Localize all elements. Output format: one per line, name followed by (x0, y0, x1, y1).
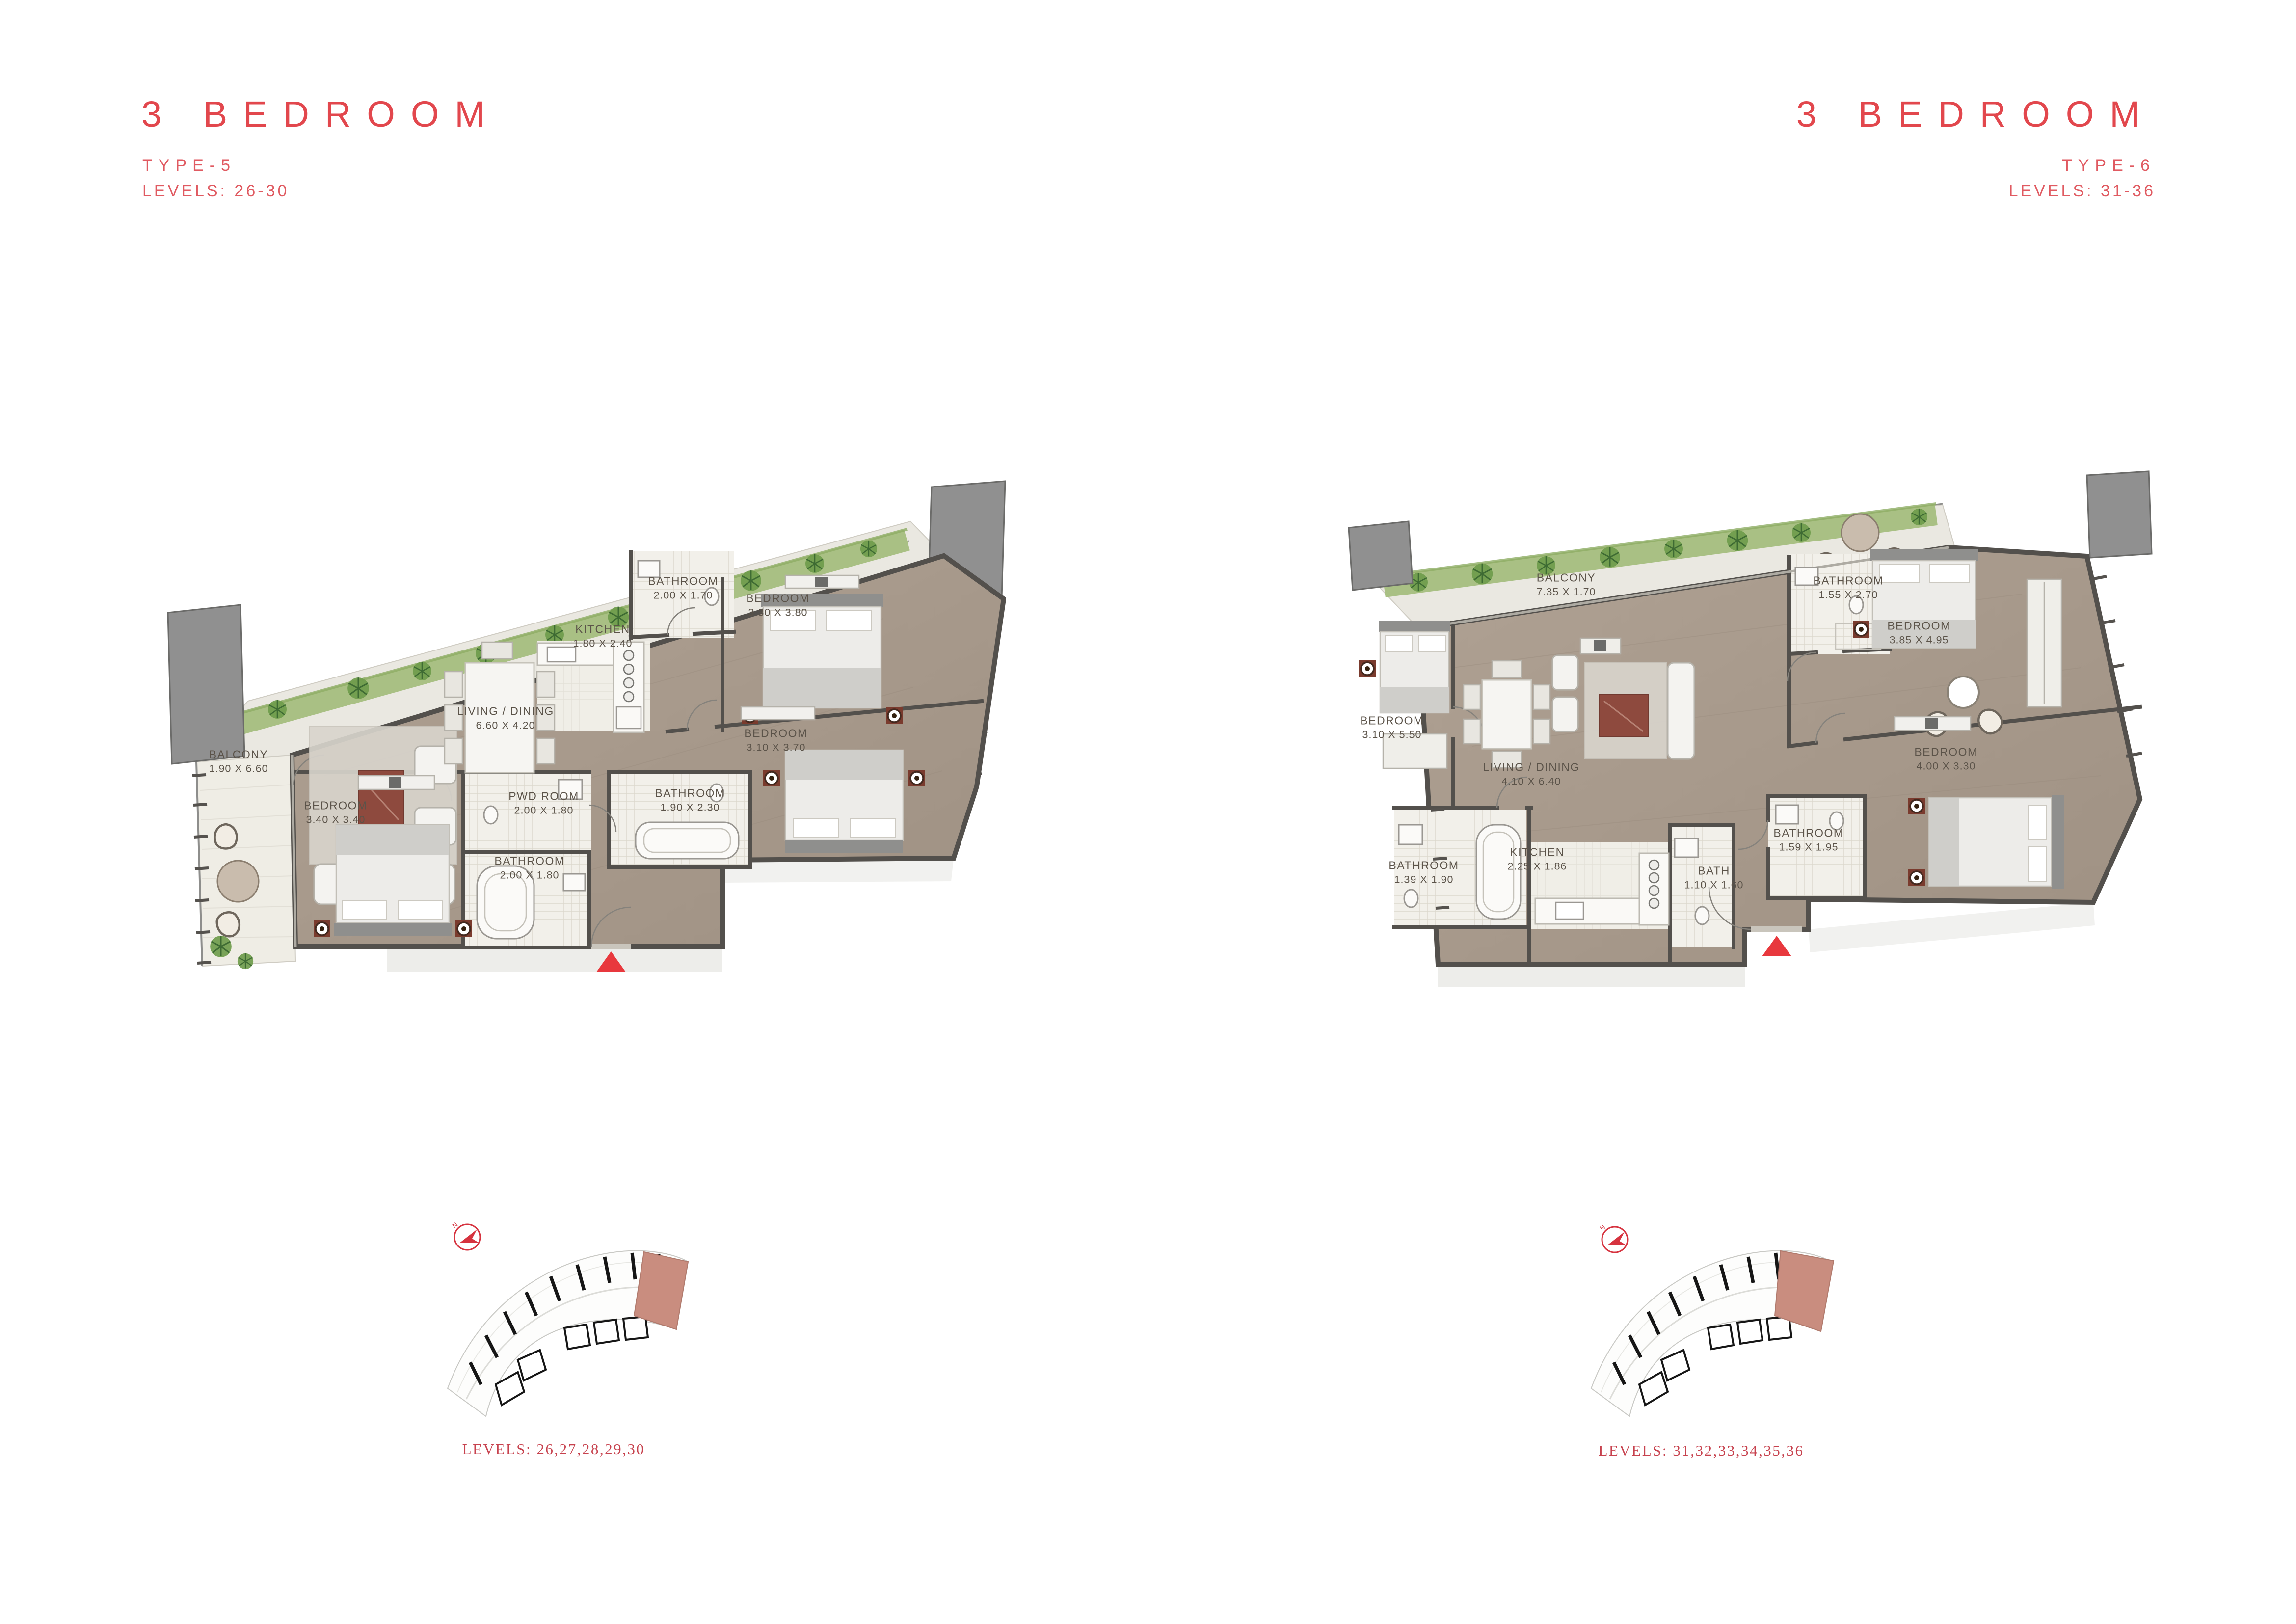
room-name: LIVING / DINING (1483, 760, 1580, 775)
floor-plan-type6 (1325, 432, 2184, 1001)
room-name: BEDROOM (1360, 713, 1423, 728)
room-label-bathroom: BATHROOM 2.00 X 1.80 (494, 854, 564, 883)
room-dims: 1.39 X 1.90 (1388, 873, 1459, 887)
type-label-type6: TYPE-6 (2062, 156, 2156, 175)
room-dims: 1.59 X 1.95 (1773, 840, 1843, 854)
room-label-bath: BATH 1.10 X 1.60 (1684, 864, 1744, 893)
room-name: BEDROOM (746, 591, 809, 606)
room-label-bedroom: BEDROOM 3.10 X 3.70 (744, 726, 807, 755)
shadow-strip (1809, 902, 2095, 952)
room-name: BATH (1684, 864, 1744, 878)
room-dims: 3.10 X 5.50 (1360, 728, 1423, 742)
room-dims: 1.90 X 6.60 (209, 762, 268, 776)
page-title-type5: 3 BEDROOM (141, 93, 501, 135)
levels-label-type6: LEVELS: 31-36 (2009, 182, 2156, 201)
room-label-bedroom: BEDROOM 3.85 X 4.95 (1887, 619, 1950, 648)
room-name: BALCONY (209, 747, 268, 762)
room-label-balcony: BALCONY 7.35 X 1.70 (1537, 570, 1596, 599)
room-label-bedroom: BEDROOM 3.30 X 3.80 (746, 591, 809, 620)
floor-plan-type5 (147, 432, 1006, 982)
room-dims: 3.10 X 3.70 (744, 741, 807, 755)
room-label-bathroom: BATHROOM 1.90 X 2.30 (655, 786, 725, 815)
room-name: BATHROOM (1388, 858, 1459, 873)
core-block (168, 605, 244, 764)
north-arrow-icon: N (1599, 1223, 1628, 1252)
room-dims: 2.00 X 1.80 (508, 804, 579, 817)
page-title-type6: 3 BEDROOM (1796, 93, 2156, 135)
room-dims: 2.25 X 1.86 (1508, 860, 1567, 873)
room-name: BEDROOM (1887, 619, 1950, 633)
room-label-pwd-room: PWD ROOM 2.00 X 1.80 (508, 789, 579, 818)
room-dims: 1.90 X 2.30 (655, 801, 725, 814)
room-dims: 1.55 X 2.70 (1813, 588, 1883, 602)
room-dims: 3.30 X 3.80 (746, 606, 809, 620)
room-label-balcony: BALCONY 1.90 X 6.60 (209, 747, 268, 776)
type-label-type5: TYPE-5 (142, 156, 236, 175)
brochure-page: 3 BEDROOM TYPE-5 LEVELS: 26-30 3 BEDROOM… (0, 0, 2296, 1624)
room-dims: 2.00 X 1.80 (494, 868, 564, 882)
levels-label-type5: LEVELS: 26-30 (142, 182, 289, 201)
room-dims: 3.40 X 3.40 (304, 813, 367, 827)
shadow-strip (1438, 965, 1745, 987)
room-name: LIVING / DINING (457, 704, 554, 719)
room-dims: 1.10 X 1.60 (1684, 878, 1744, 892)
room-name: BATHROOM (494, 854, 564, 868)
room-name: PWD ROOM (508, 789, 579, 804)
room-label-bedroom: BEDROOM 4.00 X 3.30 (1914, 745, 1977, 774)
room-name: BATHROOM (1773, 826, 1843, 840)
room-dims: 1.80 X 2.40 (573, 637, 633, 650)
room-name: KITCHEN (573, 622, 633, 637)
room-name: BEDROOM (744, 726, 807, 741)
room-dims: 6.60 X 4.20 (457, 719, 554, 732)
room-label-kitchen: KITCHEN 1.80 X 2.40 (573, 622, 633, 651)
room-dims: 7.35 X 1.70 (1537, 585, 1596, 599)
core-block (1349, 521, 1413, 590)
room-dims: 3.85 X 4.95 (1887, 633, 1950, 647)
room-label-bedroom: BEDROOM 3.40 X 3.40 (304, 798, 367, 827)
highlighted-unit (634, 1252, 688, 1329)
entry-triangle-icon (1762, 936, 1791, 956)
key-levels-caption-type6: LEVELS: 31,32,33,34,35,36 (1599, 1442, 1804, 1460)
room-label-bathroom: BATHROOM 1.39 X 1.90 (1388, 858, 1459, 887)
room-name: BATHROOM (655, 786, 725, 801)
room-label-bathroom: BATHROOM 1.55 X 2.70 (1813, 573, 1883, 602)
room-dims: 4.10 X 6.40 (1483, 775, 1580, 788)
room-label-kitchen: KITCHEN 2.25 X 1.86 (1508, 845, 1567, 874)
key-plan-type6: N (1561, 1218, 1855, 1473)
bed-bedroom-left (1359, 621, 1450, 768)
room-name: KITCHEN (1508, 845, 1567, 860)
room-name: BEDROOM (1914, 745, 1977, 759)
room-name: BATHROOM (1813, 573, 1883, 588)
room-label-bathroom: BATHROOM 2.00 X 1.70 (648, 574, 718, 603)
core-block (2087, 471, 2152, 558)
room-dims: 2.00 X 1.70 (648, 589, 718, 602)
room-label-bathroom: BATHROOM 1.59 X 1.95 (1773, 826, 1843, 855)
key-levels-caption-type5: LEVELS: 26,27,28,29,30 (462, 1440, 645, 1458)
room-name: BALCONY (1537, 570, 1596, 585)
shadow-strip (387, 947, 722, 972)
room-name: BEDROOM (304, 798, 367, 813)
room-dims: 4.00 X 3.30 (1914, 759, 1977, 773)
room-label-living-dining: LIVING / DINING 6.60 X 4.20 (457, 704, 554, 733)
north-arrow-icon: N (451, 1221, 480, 1250)
balcony-deck (196, 755, 295, 966)
room-label-bedroom: BEDROOM 3.10 X 5.50 (1360, 713, 1423, 742)
room-name: BATHROOM (648, 574, 718, 589)
key-plan-type5: N (417, 1218, 712, 1473)
room-label-living-dining: LIVING / DINING 4.10 X 6.40 (1483, 760, 1580, 789)
